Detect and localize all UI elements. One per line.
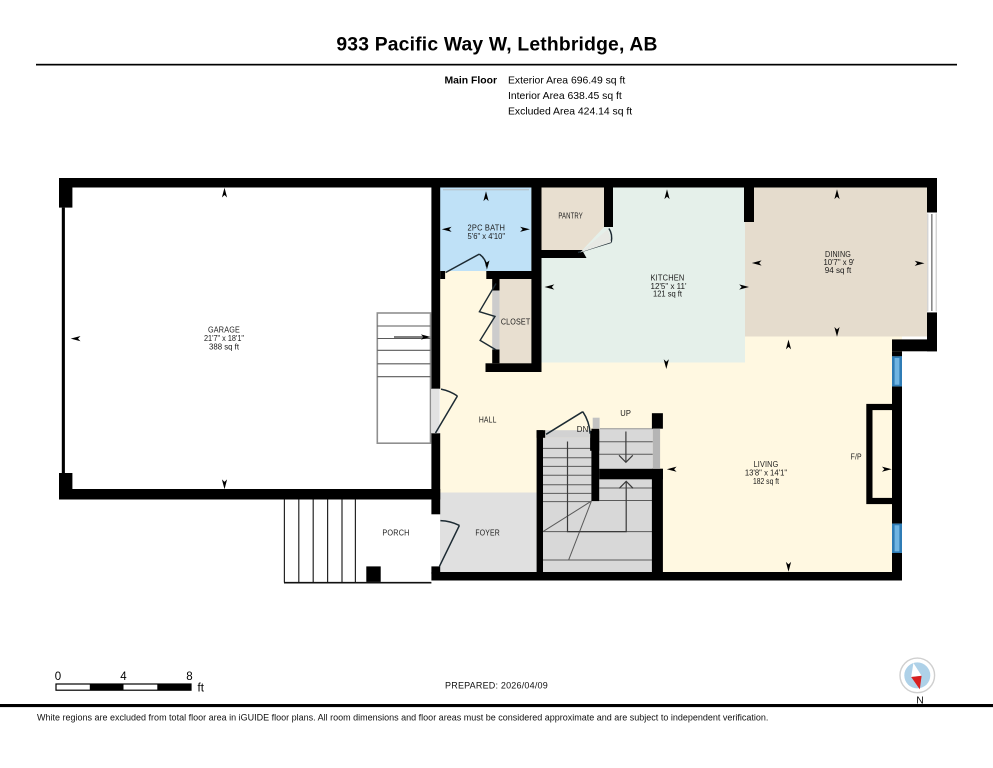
svg-text:UP: UP <box>620 409 631 418</box>
svg-text:121 sq ft: 121 sq ft <box>653 290 683 299</box>
svg-text:Exterior Area 696.49 sq ft: Exterior Area 696.49 sq ft <box>508 76 625 87</box>
svg-text:PREPARED: 2026/04/09: PREPARED: 2026/04/09 <box>445 681 548 691</box>
svg-text:PANTRY: PANTRY <box>558 212 583 221</box>
svg-text:Excluded Area 424.14 sq ft: Excluded Area 424.14 sq ft <box>508 107 632 118</box>
svg-text:CLOSET: CLOSET <box>501 318 531 327</box>
svg-text:PORCH: PORCH <box>382 529 409 538</box>
svg-text:4: 4 <box>120 671 127 683</box>
svg-text:Interior Area 638.45 sq ft: Interior Area 638.45 sq ft <box>508 91 622 102</box>
svg-text:0: 0 <box>55 671 61 683</box>
svg-text:F/P: F/P <box>851 453 862 462</box>
svg-text:FOYER: FOYER <box>475 529 500 538</box>
svg-text:5'6" x 4'10": 5'6" x 4'10" <box>468 232 506 241</box>
svg-text:Main Floor: Main Floor <box>444 76 497 87</box>
svg-text:HALL: HALL <box>479 416 497 425</box>
svg-text:94 sq ft: 94 sq ft <box>825 266 852 275</box>
svg-text:182 sq ft: 182 sq ft <box>753 477 780 486</box>
svg-text:8: 8 <box>186 671 192 683</box>
svg-text:White regions are excluded fro: White regions are excluded from total fl… <box>37 713 768 723</box>
svg-text:GARAGE: GARAGE <box>208 325 240 334</box>
svg-text:DN: DN <box>577 425 589 434</box>
svg-text:ft: ft <box>198 683 205 695</box>
svg-text:388 sq ft: 388 sq ft <box>209 343 240 352</box>
svg-text:933 Pacific Way W, Lethbridge,: 933 Pacific Way W, Lethbridge, AB <box>336 35 657 56</box>
